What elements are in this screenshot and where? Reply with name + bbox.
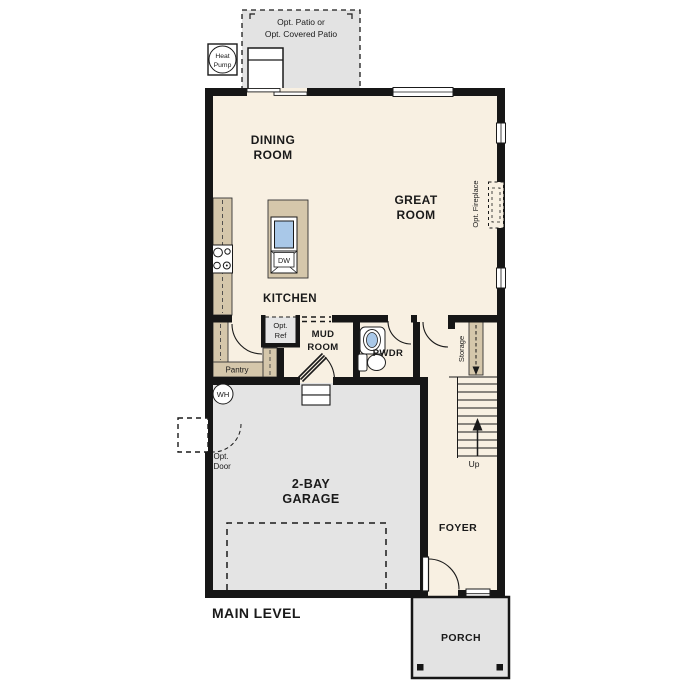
patio-steps <box>248 48 283 89</box>
kitchen-sink-icon <box>275 221 294 248</box>
sliding-door <box>247 88 307 96</box>
opt-door-label-line2: Door <box>214 462 232 471</box>
garage-label-line1: 2-BAY <box>292 477 331 491</box>
plan-title: MAIN LEVEL <box>212 605 301 621</box>
water-heater-label: WH <box>217 390 230 399</box>
wall-east <box>497 88 505 598</box>
dishwasher: DW <box>271 251 297 273</box>
burner-dot <box>226 265 228 267</box>
garage-label-line2: GARAGE <box>282 492 339 506</box>
sliding-door-panel <box>274 92 307 95</box>
heat-pump-label-line2: Pump <box>214 62 232 69</box>
wall-kitchen-south-stub <box>213 315 232 323</box>
wall-storage-hinge-stub <box>448 321 455 329</box>
wall-pwdr-east <box>413 322 420 377</box>
great-room-label-line1: GREAT <box>394 193 437 207</box>
wall-garage-north-left <box>205 377 300 385</box>
wall-pwdr-north <box>332 315 388 323</box>
dining-room-label-line1: DINING <box>251 133 295 147</box>
optional-refrigerator: Opt. Ref <box>265 317 296 344</box>
dining-room-label-line2: ROOM <box>254 148 293 162</box>
porch-post <box>497 664 504 671</box>
powder-room-label: PWDR <box>373 348 404 359</box>
wall-refnook-bottom <box>261 343 300 348</box>
great-room-label-line2: ROOM <box>397 208 436 222</box>
water-heater: WH <box>213 384 233 404</box>
porch-post <box>417 664 424 671</box>
wall-refnook-left <box>261 315 266 347</box>
kitchen-label: KITCHEN <box>263 293 317 305</box>
fireplace-outline <box>489 182 504 228</box>
cooktop <box>212 245 233 273</box>
wall-pwdr-stub <box>411 315 417 323</box>
opt-door-label-line1: Opt. <box>214 452 229 461</box>
porch-area: PORCH <box>412 597 509 678</box>
foyer-label: FOYER <box>439 522 477 534</box>
porch-label: PORCH <box>441 632 481 644</box>
storage-label: Storage <box>457 336 466 362</box>
mud-room-label-line2: ROOM <box>307 342 338 353</box>
wall-storage-north <box>448 315 505 323</box>
toilet-tank <box>358 354 367 371</box>
optional-patio-area: Opt. Patio or Opt. Covered Patio <box>242 10 360 90</box>
opt-fireplace-label: Opt. Fireplace <box>471 180 480 227</box>
stairs-up-label: Up <box>469 459 480 469</box>
opt-ref-label-line2: Ref <box>275 331 288 340</box>
pwdr-sink-icon <box>367 333 378 348</box>
floor-plan-page: Opt. Patio or Opt. Covered Patio Heat Pu… <box>0 0 687 687</box>
wall-west <box>205 88 213 598</box>
heat-pump-label-line1: Heat <box>215 53 229 60</box>
sliding-door-panel <box>247 89 280 92</box>
wall-mudroom-west <box>277 348 284 377</box>
front-door-leaf <box>423 557 429 591</box>
wall-garage-north-right <box>333 377 428 385</box>
opt-ref-label-line1: Opt. <box>273 321 287 330</box>
floor-plan-drawing: Opt. Patio or Opt. Covered Patio Heat Pu… <box>0 0 687 687</box>
dishwasher-label: DW <box>278 256 290 265</box>
opt-door-box <box>178 418 208 452</box>
patio-label-line1: Opt. Patio or <box>277 17 325 27</box>
heat-pump-unit: Heat Pump <box>208 44 237 75</box>
patio-label-line2: Opt. Covered Patio <box>265 29 338 39</box>
pantry-label: Pantry <box>225 366 248 375</box>
garage-steps <box>302 385 330 405</box>
mud-room-label-line1: MUD <box>312 329 335 340</box>
kitchen-island: DW <box>268 200 308 278</box>
wall-refnook-right <box>296 315 301 347</box>
